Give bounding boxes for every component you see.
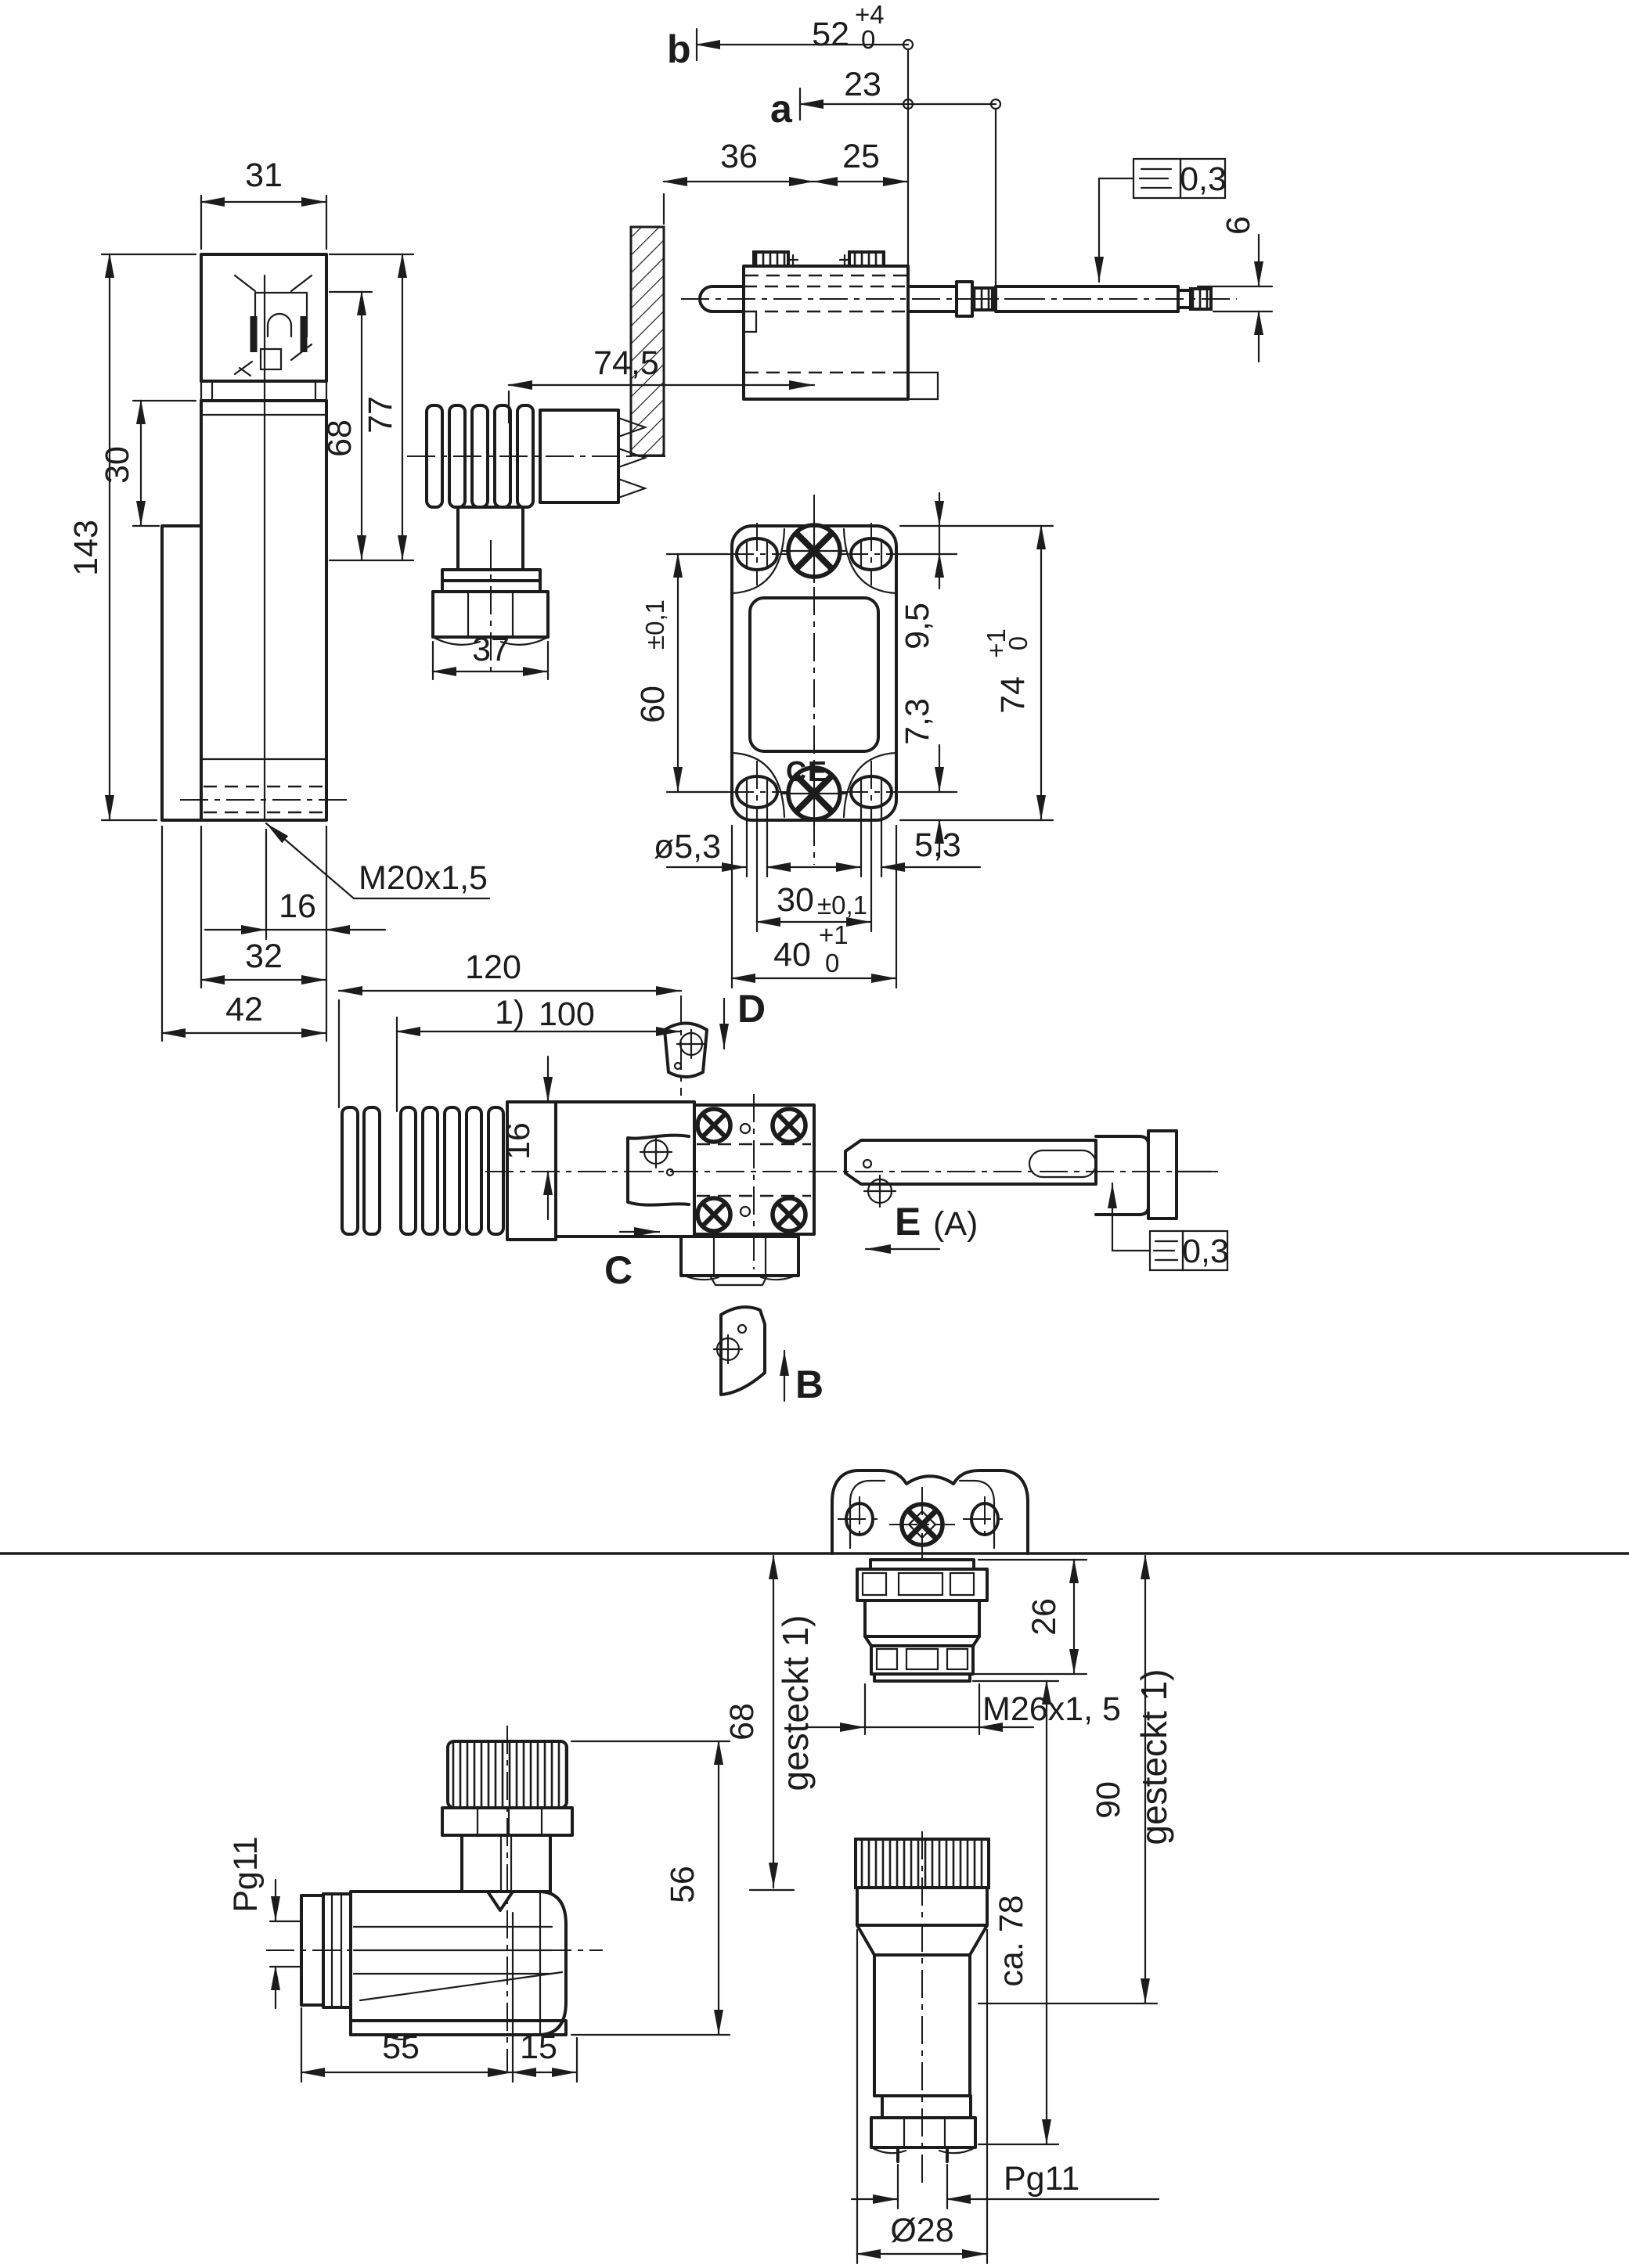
technical-drawing: 31 143 30 68 77	[0, 0, 1629, 2268]
dim-36-25: 36 25	[664, 138, 908, 224]
dim-77: 77	[330, 254, 413, 560]
view-label-a: a	[770, 87, 793, 131]
dim-40-tol-plus: +1	[819, 920, 849, 949]
dim-56: 56	[571, 1741, 730, 2035]
dim-label-23: 23	[844, 66, 881, 103]
plan-view: b 52 +4 0 a 23 36 25	[509, 0, 1018, 455]
dim-label-dia5-3: ø5,3	[654, 828, 721, 866]
dim-label-31: 31	[245, 157, 283, 194]
dim-label-6: 6	[1220, 216, 1257, 235]
view-arrow-c: C	[604, 1232, 659, 1292]
dim-label-ca78: ca. 78	[993, 1895, 1030, 1986]
thread-label-pg11-left: Pg11	[227, 1836, 265, 1912]
wall-hatch	[631, 227, 664, 455]
dim-label-74-5: 74,5	[593, 344, 659, 382]
view-label-b: b	[667, 27, 691, 71]
dim-label-143: 143	[67, 520, 105, 576]
straightness-symbol-icon	[1154, 1241, 1177, 1260]
side-view: 31 143 30 68 77	[67, 157, 489, 1041]
note-gesteckt-left: gesteckt 1)	[775, 1615, 816, 1791]
dim-label-77: 77	[362, 396, 399, 434]
dim-label-74: 74	[994, 676, 1032, 714]
dim-label-5-3: 5,3	[914, 826, 961, 864]
dim-label-30: 30	[99, 446, 136, 484]
dim-label-42: 42	[225, 991, 263, 1028]
angle-plug-view: Pg11 55 15 56	[227, 1726, 730, 2082]
dim-42: 42	[162, 826, 326, 1041]
dim-pg11-bottom: Pg11	[852, 2160, 1159, 2209]
technical-drawing-page: 31 143 30 68 77	[0, 0, 1629, 2268]
view-label-b2: B	[795, 1363, 824, 1406]
dim-26: 26	[966, 1560, 1087, 1674]
dim-52-b: b 52 +4 0	[667, 0, 913, 71]
bracket-screw	[889, 1487, 955, 1562]
dim-label-15: 15	[520, 2029, 557, 2066]
note-gesteckt-right: gesteckt 1)	[1133, 1669, 1174, 1845]
dim-m26: M26x1, 5	[806, 1684, 1121, 1734]
dim-label-32: 32	[245, 938, 283, 975]
tol-zero: 0	[861, 25, 875, 54]
dim-label-68b: 68	[723, 1703, 761, 1741]
front-view: CE 60 ±0,1 9,5 7,3	[634, 493, 1053, 988]
view-label-d: D	[737, 987, 766, 1031]
dim-31: 31	[201, 157, 326, 249]
dim-label-30-tol: ±0,1	[817, 891, 867, 920]
dim-55-15: 55 15	[301, 1913, 577, 2082]
dim-pg11-left: Pg11	[227, 1836, 300, 2008]
view-label-e: E	[895, 1200, 921, 1244]
dim-label-90: 90	[1090, 1781, 1127, 1819]
straightness-symbol-icon	[1140, 169, 1171, 188]
dim-100: 1) 100	[397, 994, 681, 1111]
tolerance-value-bottom: 0,3	[1182, 1233, 1229, 1270]
dim-label-37: 37	[472, 631, 510, 668]
thread-label-m20: M20x1,5	[359, 859, 488, 897]
dim-label-9-5: 9,5	[899, 603, 936, 650]
dim-label-30b: 30	[777, 881, 814, 919]
dim-label-16b: 16	[499, 1122, 537, 1160]
dim-9-5: 9,5	[899, 493, 957, 650]
dim-143: 143	[67, 254, 196, 820]
coupler-view: 26 M26x1, 5 90 gesteckt 1) ca. 78	[723, 1556, 1174, 2263]
dim-74-tol-zero: 0	[1004, 636, 1033, 650]
cam-b: B	[714, 1307, 824, 1406]
cam-d: D	[665, 987, 766, 1096]
dim-label-36: 36	[720, 138, 758, 175]
thread-label-pg11-bottom: Pg11	[1004, 2160, 1079, 2198]
dim-label-60-tol: ±0,1	[640, 599, 669, 650]
dim-74: 74 +1 0	[900, 526, 1053, 820]
dim-30-left: 30	[99, 401, 196, 526]
dim-label-dia28: Ø28	[890, 2212, 953, 2249]
lever-view: 0,3 6	[971, 159, 1272, 362]
dim-label-68: 68	[321, 419, 359, 457]
view-label-c: C	[604, 1248, 632, 1292]
dim-23-a: a 23	[770, 66, 1000, 131]
tolerance-frame-top: 0,3	[1099, 159, 1227, 282]
dim-label-60: 60	[634, 686, 672, 723]
bracket-view	[832, 1471, 1028, 1562]
dim-60: 60 ±0,1	[634, 554, 728, 792]
dim-note-1: 1)	[495, 994, 524, 1031]
tolerance-frame-bottom: 0,3	[1112, 1183, 1229, 1270]
view-arrow-e: E (A)	[866, 1200, 978, 1249]
dim-label-55: 55	[382, 2029, 420, 2066]
assembly-side-view: 120 1) 100 D	[339, 949, 1229, 1406]
dim-68-bottom: 68 gesteckt 1)	[723, 1556, 816, 1890]
thread-label-m26: M26x1, 5	[982, 1690, 1121, 1728]
plug-side-view: 37	[407, 405, 665, 679]
dim-label-7-3: 7,3	[899, 698, 936, 745]
target-icon-body	[640, 1136, 673, 1175]
dim-label-16: 16	[279, 887, 316, 925]
dim-label-26: 26	[1025, 1598, 1063, 1636]
dim-40-tol-zero: 0	[825, 949, 839, 977]
view-label-e-ref: (A)	[933, 1205, 978, 1243]
ce-mark-icon: CE	[786, 755, 828, 787]
dim-label-52: 52	[812, 16, 849, 53]
dim-label-40: 40	[773, 936, 811, 974]
head-screws	[697, 1109, 805, 1231]
tolerance-value-top: 0,3	[1180, 160, 1227, 198]
dim-label-100: 100	[539, 995, 595, 1033]
dim-label-120: 120	[465, 949, 521, 986]
dim-label-56: 56	[664, 1866, 701, 1903]
dim-label-25: 25	[842, 138, 880, 175]
